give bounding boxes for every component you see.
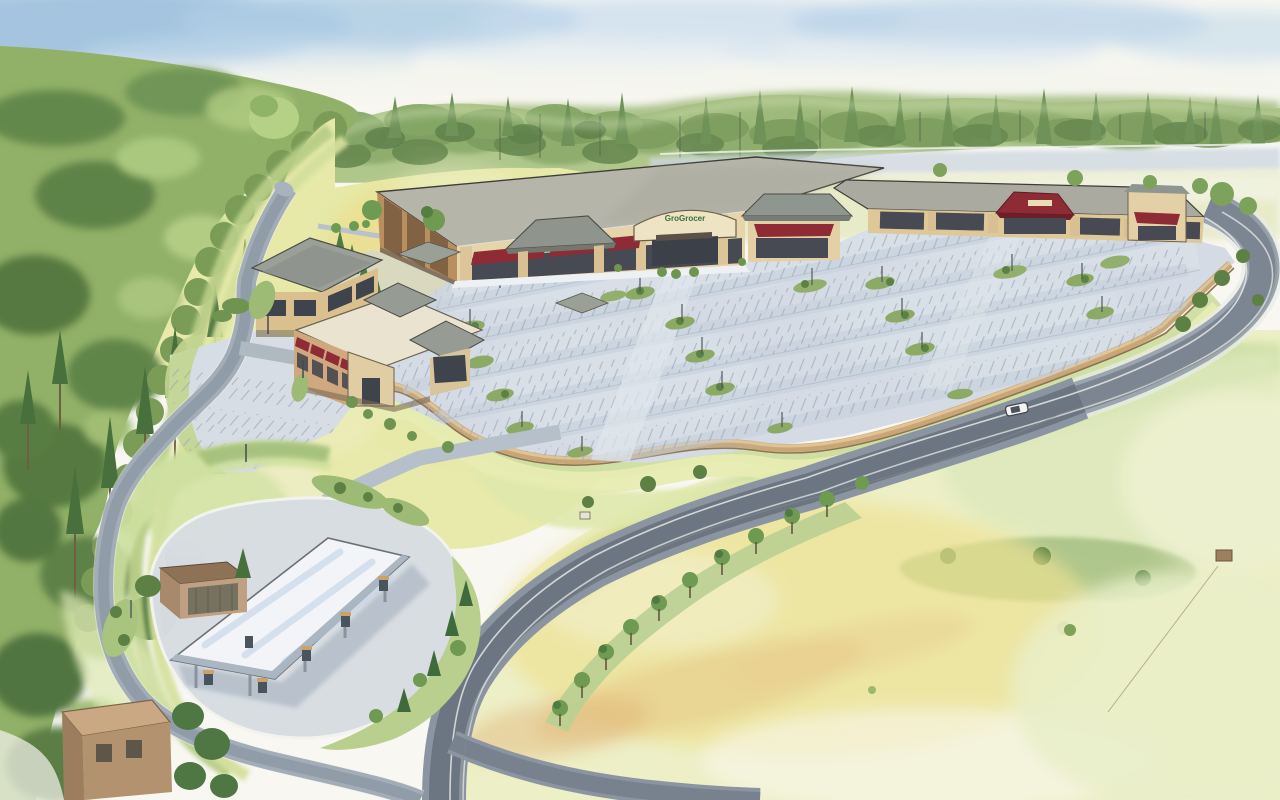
svg-text:GroGrocer: GroGrocer [665, 214, 705, 223]
